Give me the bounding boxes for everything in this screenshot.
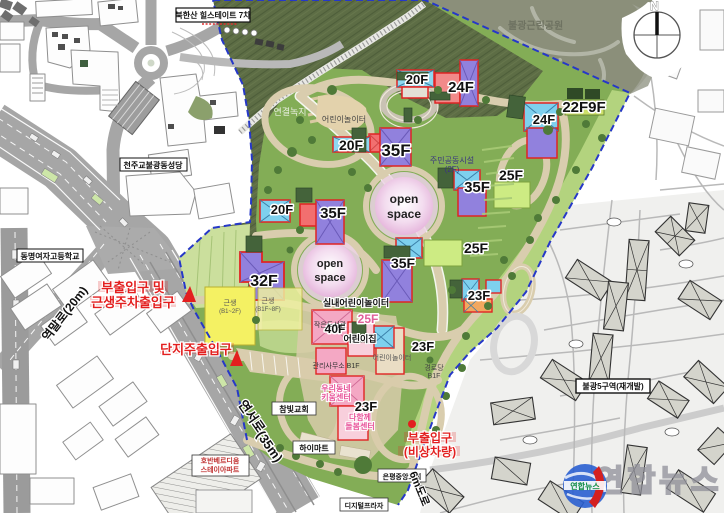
svg-text:어린이집: 어린이집 <box>343 333 376 344</box>
svg-text:23F: 23F <box>412 339 434 354</box>
svg-text:20F: 20F <box>406 72 428 87</box>
svg-text:22F9F: 22F9F <box>562 99 605 116</box>
svg-text:20F: 20F <box>339 137 364 153</box>
svg-text:open: open <box>390 192 419 206</box>
svg-text:돌봄센터: 돌봄센터 <box>345 421 374 431</box>
svg-text:어린이놀이터: 어린이놀이터 <box>322 114 366 124</box>
svg-text:실내어린이놀이터: 실내어린이놀이터 <box>323 297 389 308</box>
svg-text:연결녹지: 연결녹지 <box>273 107 306 117</box>
svg-text:동명여자고등학교: 동명여자고등학교 <box>21 251 81 261</box>
svg-text:open: open <box>317 258 344 270</box>
svg-text:근생: 근생 <box>224 298 237 307</box>
svg-text:스테이아파트: 스테이아파트 <box>201 465 240 474</box>
svg-text:천주교불광동성당: 천주교불광동성당 <box>124 160 184 170</box>
svg-text:20F: 20F <box>271 202 293 217</box>
svg-text:35F: 35F <box>320 205 346 222</box>
svg-text:35F: 35F <box>464 179 490 196</box>
svg-text:다함께: 다함께 <box>349 412 371 422</box>
svg-text:23F: 23F <box>468 288 490 303</box>
svg-text:주민공동시설: 주민공동시설 <box>430 155 474 165</box>
svg-text:근생주차출입구: 근생주차출입구 <box>91 295 175 310</box>
svg-text:space: space <box>387 207 421 221</box>
svg-text:25F: 25F <box>499 167 524 183</box>
svg-text:호반베르디움: 호반베르디움 <box>201 456 240 465</box>
svg-text:북한산 힐스테이트 7차: 북한산 힐스테이트 7차 <box>175 10 251 20</box>
svg-text:불광근린공원: 불광근린공원 <box>508 19 563 32</box>
svg-text:작은도서관: 작은도서관 <box>314 320 347 329</box>
svg-text:디지털프라자: 디지털프라자 <box>345 501 384 510</box>
svg-text:(B1F~8F): (B1F~8F) <box>255 307 281 313</box>
svg-text:단지주출입구: 단지주출입구 <box>160 342 232 357</box>
svg-text:N: N <box>650 0 659 13</box>
svg-text:참빛교회: 참빛교회 <box>279 404 308 414</box>
svg-text:근생: 근생 <box>262 296 275 305</box>
svg-text:23F: 23F <box>355 399 377 414</box>
svg-text:키움센터: 키움센터 <box>321 392 350 402</box>
svg-text:관리사무소 B1F: 관리사무소 B1F <box>313 361 360 370</box>
svg-text:우리동네: 우리동네 <box>321 383 350 393</box>
svg-text:(2F): (2F) <box>445 165 460 174</box>
svg-text:연합뉴스: 연합뉴스 <box>596 465 722 498</box>
svg-text:space: space <box>314 272 345 284</box>
svg-text:25F: 25F <box>464 240 489 256</box>
svg-text:(비상차량): (비상차량) <box>404 444 456 459</box>
svg-text:25F: 25F <box>358 312 379 326</box>
svg-text:35F: 35F <box>381 141 410 160</box>
svg-text:(B1~2F): (B1~2F) <box>219 309 241 315</box>
svg-text:경로당: 경로당 <box>424 363 444 372</box>
svg-text:24F: 24F <box>533 112 555 127</box>
svg-text:B1F: B1F <box>428 373 441 380</box>
svg-text:연합뉴스: 연합뉴스 <box>570 481 600 491</box>
svg-text:불광5구역(재개발): 불광5구역(재개발) <box>582 381 644 391</box>
svg-text:부출입구: 부출입구 <box>408 430 452 445</box>
svg-text:35F: 35F <box>391 255 416 271</box>
svg-text:하이마트: 하이마트 <box>299 443 329 453</box>
svg-text:어린이놀이터: 어린이놀이터 <box>373 353 412 362</box>
svg-text:24F: 24F <box>448 79 474 96</box>
svg-text:부출입구 및: 부출입구 및 <box>101 280 164 295</box>
svg-text:32F: 32F <box>250 273 278 290</box>
